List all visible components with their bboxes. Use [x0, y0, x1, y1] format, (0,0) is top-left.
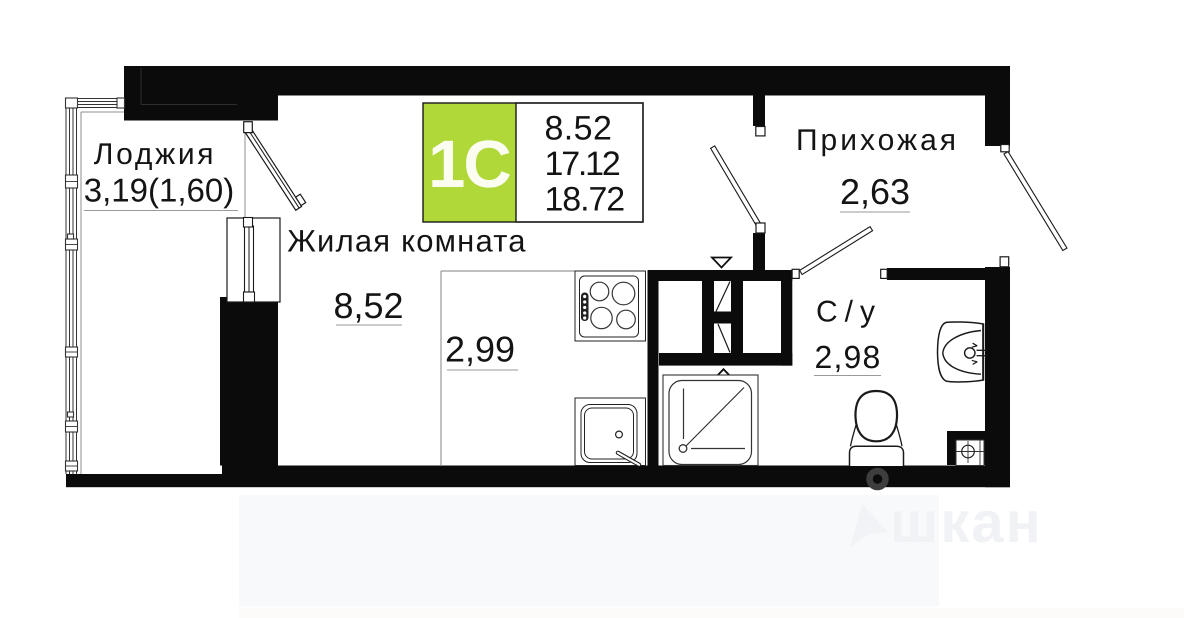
svg-text:2,98: 2,98 — [814, 339, 881, 375]
svg-text:2,63: 2,63 — [840, 171, 910, 212]
svg-text:1С: 1С — [428, 127, 510, 202]
svg-text:17.12: 17.12 — [545, 145, 620, 183]
svg-text:8.52: 8.52 — [545, 110, 613, 148]
svg-text:8,52: 8,52 — [333, 285, 403, 326]
svg-text:2,99: 2,99 — [445, 329, 515, 370]
svg-text:С/у: С/у — [816, 296, 882, 329]
svg-text:18.72: 18.72 — [545, 181, 625, 219]
svg-text:3,19(1,60): 3,19(1,60) — [84, 172, 234, 209]
svg-text:Жилая комната: Жилая комната — [287, 224, 527, 259]
svg-text:Прихожая: Прихожая — [796, 124, 959, 157]
svg-text:шкан: шкан — [890, 490, 1043, 555]
svg-text:Лоджия: Лоджия — [94, 138, 217, 171]
